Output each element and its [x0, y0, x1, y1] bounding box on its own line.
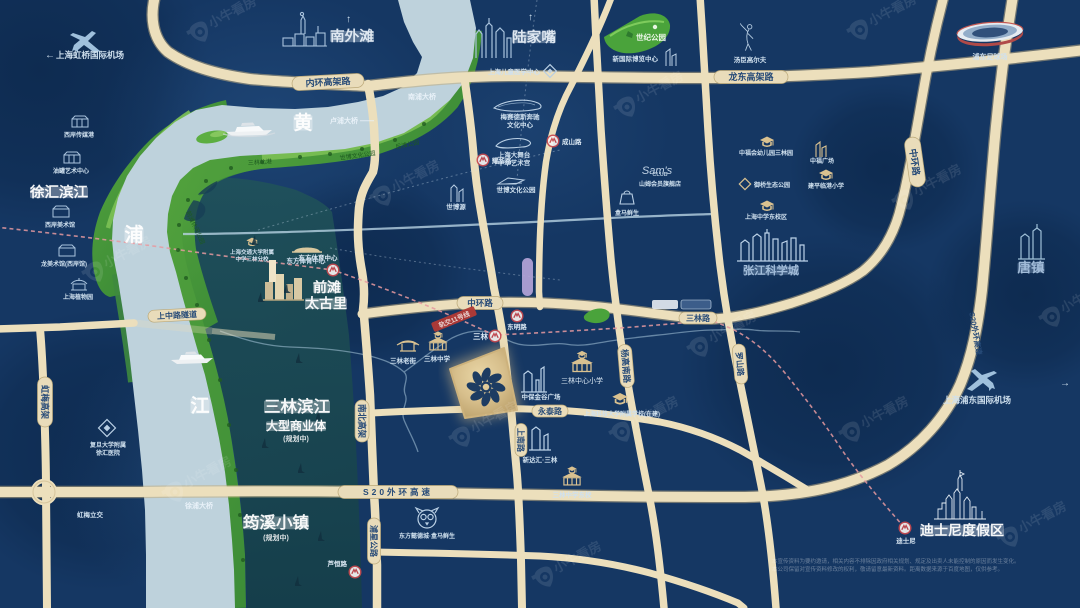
svg-text:徐汇医院: 徐汇医院	[95, 449, 120, 457]
svg-text:前滩: 前滩	[313, 279, 342, 295]
svg-text:上海植物园: 上海植物园	[63, 293, 93, 301]
svg-text:永泰路: 永泰路	[537, 406, 563, 416]
svg-text:东明路: 东明路	[507, 322, 527, 331]
svg-text:御桥生态公园: 御桥生态公园	[753, 181, 790, 189]
svg-text:(规划中): (规划中)	[283, 434, 309, 443]
svg-text:徐汇滨江: 徐汇滨江	[29, 184, 88, 200]
svg-text:上海大舞台: 上海大舞台	[498, 150, 531, 159]
svg-text:卢浦大桥 ——: 卢浦大桥 ——	[330, 116, 374, 125]
svg-text:建平临港小学: 建平临港小学	[808, 182, 844, 190]
svg-text:三林滨江: 三林滨江	[264, 397, 330, 416]
svg-text:上海中学东校区: 上海中学东校区	[745, 213, 787, 221]
svg-text:汤臣高尔夫: 汤臣高尔夫	[734, 55, 767, 64]
svg-text:南北高架: 南北高架	[357, 404, 367, 439]
svg-text:盒马鲜生: 盒马鲜生	[614, 209, 639, 217]
svg-text:成山路: 成山路	[562, 137, 582, 146]
svg-text:中华艺术宫: 中华艺术宫	[498, 158, 531, 167]
svg-text:CLUB: CLUB	[652, 172, 667, 178]
svg-text:黄: 黄	[294, 111, 313, 134]
svg-text:迪士尼度假区: 迪士尼度假区	[920, 522, 1005, 538]
svg-text:三林: 三林	[473, 331, 488, 341]
svg-text:江: 江	[191, 395, 210, 417]
svg-text:中福广场: 中福广场	[810, 157, 834, 165]
svg-text:上南路: 上南路	[516, 428, 526, 453]
svg-text:↑: ↑	[528, 12, 533, 23]
svg-text:东方体育中心: 东方体育中心	[287, 256, 327, 265]
svg-text:世纪公园: 世纪公园	[636, 32, 666, 42]
svg-text:世博源: 世博源	[446, 202, 466, 211]
svg-text:大型商业体: 大型商业体	[266, 418, 327, 433]
svg-text:徐浦大桥: 徐浦大桥	[184, 501, 214, 510]
svg-text:→: →	[1060, 378, 1070, 389]
svg-text:芦恒路: 芦恒路	[328, 559, 348, 568]
svg-text:南浦大桥: 南浦大桥	[408, 92, 437, 101]
svg-text:龙美术馆(西岸馆): 龙美术馆(西岸馆)	[41, 260, 87, 268]
svg-text:梅赛德斯奔驰: 梅赛德斯奔驰	[501, 112, 541, 121]
svg-text:本宣传资料为要约邀请，相关内容不排除因政府相关规划、规定及出: 本宣传资料为要约邀请，相关内容不排除因政府相关规划、规定及出卖人未能控制的原因而…	[772, 557, 1020, 565]
svg-text:←: ←	[45, 50, 55, 61]
svg-text:中学三林分校: 中学三林分校	[235, 255, 269, 263]
svg-text:油罐艺术中心: 油罐艺术中心	[53, 167, 89, 175]
svg-text:新国际博览中心: 新国际博览中心	[613, 54, 659, 63]
svg-text:(规划中): (规划中)	[263, 533, 289, 542]
svg-text:上海虹桥国际机场: 上海虹桥国际机场	[56, 50, 125, 60]
svg-text:张江科学城: 张江科学城	[743, 263, 799, 277]
svg-text:三林路: 三林路	[686, 313, 711, 323]
svg-text:三林中学: 三林中学	[424, 354, 451, 363]
svg-text:东方懿德城·盒马鲜生: 东方懿德城·盒马鲜生	[399, 532, 455, 540]
svg-text:西岸传媒港: 西岸传媒港	[64, 131, 95, 139]
svg-text:唐镇: 唐镇	[1018, 260, 1045, 275]
svg-text:三林中心小学: 三林中心小学	[561, 376, 603, 385]
svg-text:本公司保留对宣传资料修改的权利，敬请留意最新资料。距离数据来: 本公司保留对宣传资料修改的权利，敬请留意最新资料。距离数据来源于百度地图，仅供参…	[772, 565, 1003, 573]
svg-text:龙东高架路: 龙东高架路	[727, 71, 774, 82]
svg-text:浦东足球场: 浦东足球场	[973, 52, 1008, 61]
svg-text:三林中学东校: 三林中学东校	[553, 490, 593, 499]
svg-text:山姆会员旗舰店: 山姆会员旗舰店	[639, 180, 681, 188]
svg-text:虹梅立交: 虹梅立交	[77, 510, 104, 519]
svg-text:中保金谷广场: 中保金谷广场	[522, 392, 562, 401]
svg-text:上海儿童医学中心: 上海儿童医学中心	[488, 67, 541, 76]
svg-text:三林老街: 三林老街	[390, 356, 417, 365]
svg-text:太古里: 太古里	[305, 295, 348, 311]
svg-text:西岸美术馆: 西岸美术馆	[45, 221, 75, 229]
svg-text:陆家嘴: 陆家嘴	[512, 29, 556, 45]
svg-text:复旦大学附属: 复旦大学附属	[89, 441, 126, 449]
svg-text:虹梅高架: 虹梅高架	[40, 385, 50, 420]
svg-text:南外滩: 南外滩	[330, 28, 374, 44]
svg-text:上海交通大学附属: 上海交通大学附属	[230, 248, 275, 256]
svg-text:筠溪小镇: 筠溪小镇	[243, 513, 309, 532]
svg-text:↑: ↑	[346, 14, 351, 25]
svg-text:中福会幼儿园三林园: 中福会幼儿园三林园	[739, 149, 793, 157]
svg-text:迪士尼: 迪士尼	[896, 536, 916, 545]
svg-text:上海浦东国际机场: 上海浦东国际机场	[943, 395, 1012, 405]
svg-text:新达汇·三林: 新达汇·三林	[523, 455, 558, 464]
svg-text:S20外环高速: S20外环高速	[363, 487, 433, 497]
svg-text:浦星公路: 浦星公路	[369, 525, 379, 558]
svg-text:上中路隧道: 上中路隧道	[157, 309, 197, 321]
svg-text:文化中心: 文化中心	[506, 120, 534, 129]
svg-text:世博文化公园: 世博文化公园	[497, 185, 537, 194]
